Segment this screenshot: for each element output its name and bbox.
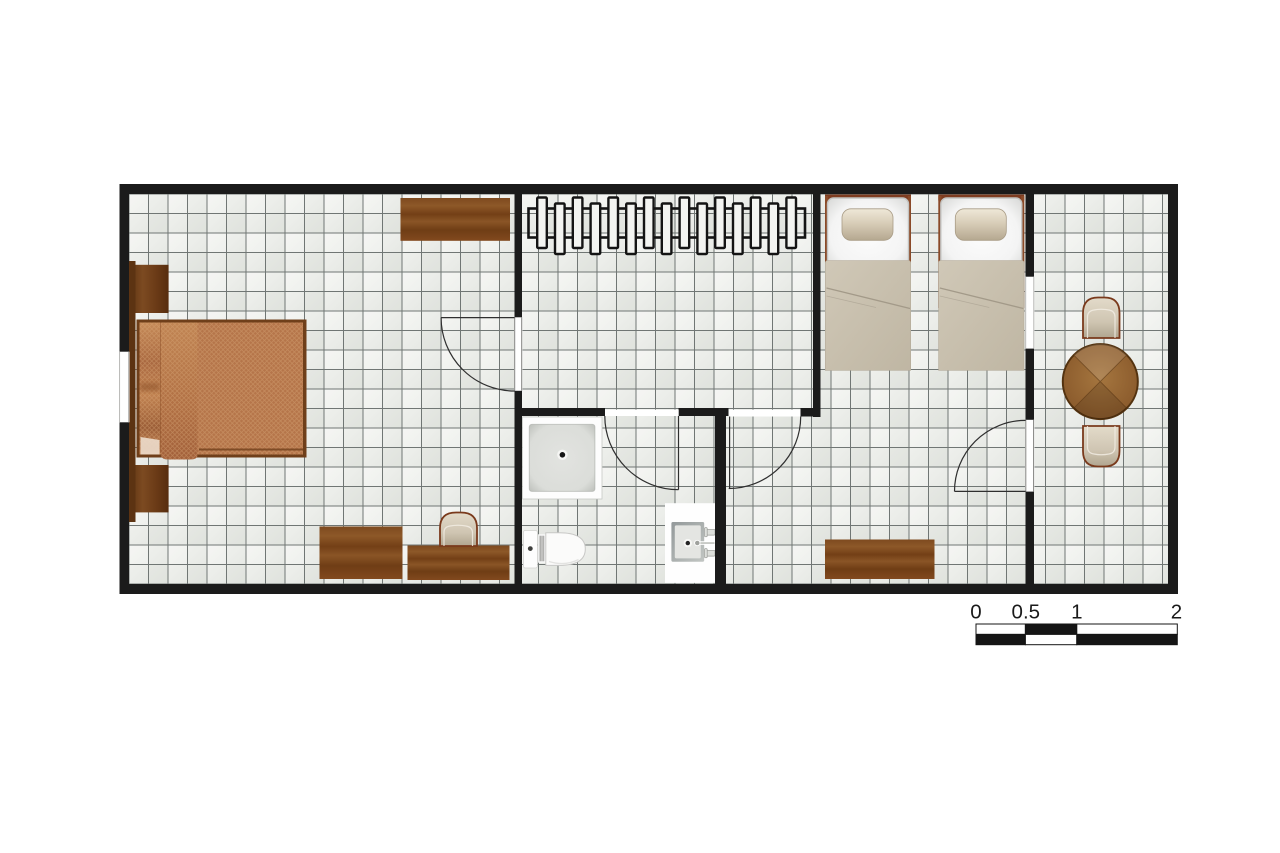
svg-text:2: 2 — [1171, 601, 1182, 624]
svg-text:0.5: 0.5 — [1012, 601, 1041, 624]
svg-text:0: 0 — [970, 601, 981, 624]
svg-text:1: 1 — [1071, 601, 1082, 624]
